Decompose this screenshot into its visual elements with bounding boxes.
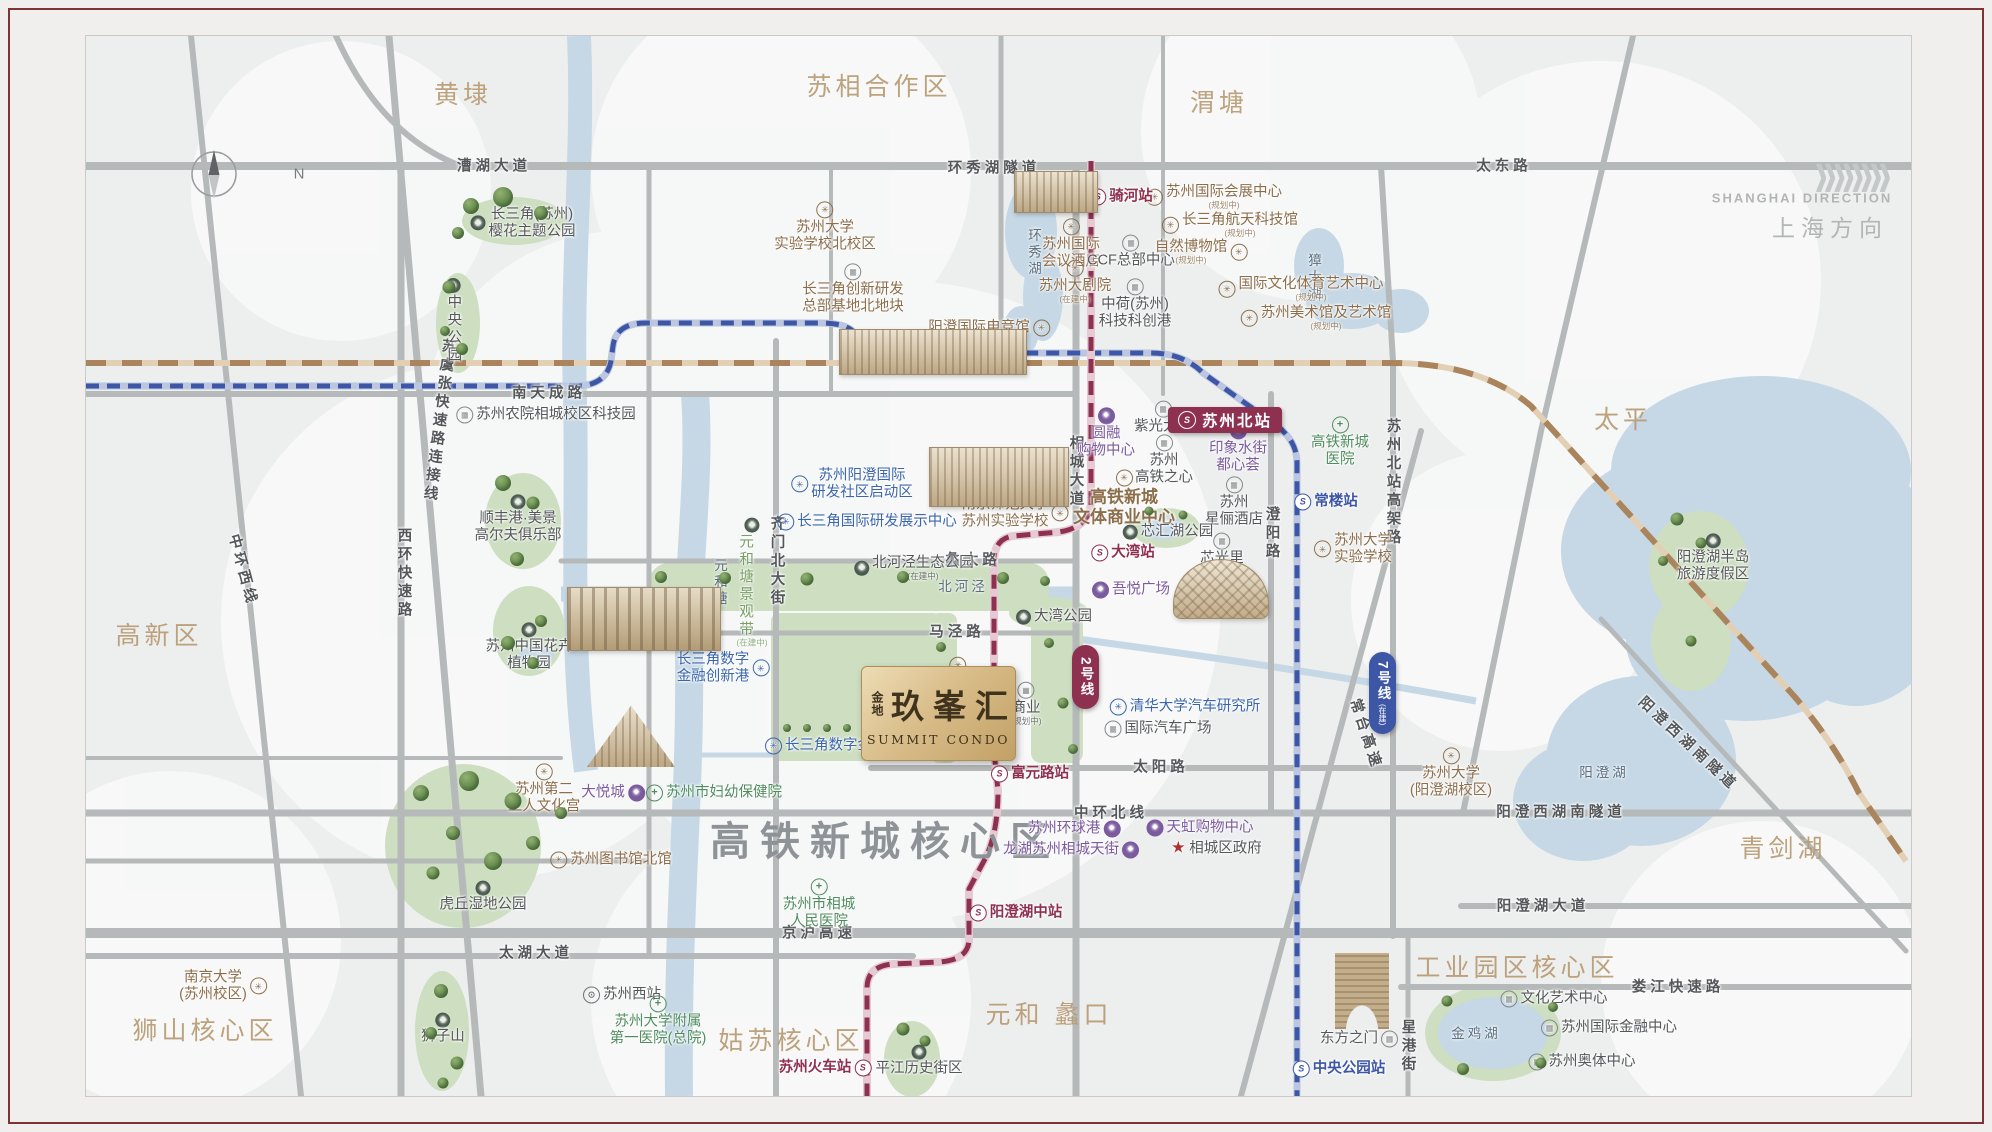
building-icon: ▦: [456, 407, 473, 424]
road-label: 阳澄湖大道: [1497, 895, 1590, 916]
poi-label: ✳长三角国际研发展示中心: [777, 514, 957, 531]
poi-label: +高铁新城医院: [1311, 416, 1369, 467]
poi-text: 苏州火车站: [779, 1060, 852, 1077]
tree-icon: [823, 724, 831, 732]
building-icon: ▦: [1226, 476, 1243, 493]
poi-text: 长三角国际研发展示中心: [797, 514, 957, 531]
metro-line7-station-icon: S: [1293, 1061, 1310, 1078]
tree-icon: [1058, 698, 1069, 709]
tree-icon: [1040, 576, 1050, 586]
building-icon: ▦: [1017, 682, 1034, 699]
map-canvas: 黄埭苏相合作区渭塘太平高新区狮山核心区姑苏核心区元和 蠡口青剑湖工业园区核心区高…: [85, 35, 1912, 1097]
hospital-icon: +: [649, 995, 666, 1012]
line7-status: (在建): [1377, 704, 1388, 725]
poi-station: S富元路站: [991, 766, 1069, 783]
park-icon: ♣: [1706, 533, 1721, 548]
poi-text: 大湾公园: [1034, 609, 1092, 626]
tree-icon: [527, 657, 539, 669]
park-icon: ♣: [1016, 609, 1031, 624]
poi-label: ♣大湾公园: [1016, 609, 1092, 626]
road-label: 阳澄西湖南隧道: [1496, 801, 1626, 822]
park-icon: ♣: [471, 216, 486, 231]
tree-icon: [1068, 744, 1078, 754]
road-label: 中环西线: [224, 532, 263, 609]
road-label: 阳澄西湖南隧道: [1634, 691, 1743, 795]
landmark-icon: ✳: [765, 738, 782, 755]
tree-icon: [1548, 1002, 1558, 1012]
region-label: 元和 蠡口: [986, 995, 1113, 1031]
poi-text: 相城区政府: [1189, 841, 1262, 858]
road-label: 漕湖大道: [457, 155, 531, 176]
road-label: 南天成路: [512, 382, 586, 403]
poi-text: 元和塘景观带(在建中): [736, 534, 767, 649]
tree-icon: [803, 724, 811, 732]
poi-label: ▦国际汽车广场: [1105, 721, 1212, 738]
metro-icon: S: [1178, 411, 1196, 429]
poi-text: 苏州星俪酒店: [1205, 494, 1263, 527]
tree-icon: [783, 724, 791, 732]
poi-text: 国际汽车广场: [1125, 721, 1212, 738]
fintech-port-towers: [567, 587, 721, 651]
poi-text: 苏州大学(阳澄湖校区): [1410, 765, 1492, 798]
tree-icon: [456, 343, 468, 355]
building-icon: ▦: [1127, 278, 1144, 295]
tree-icon: [897, 571, 909, 583]
landmark-icon: ✳: [1033, 320, 1050, 337]
poi-label: ◆吾悦广场: [1092, 582, 1170, 599]
poi-text: 苏州国际金融中心: [1561, 1020, 1677, 1037]
water-label: 阳澄湖: [1579, 761, 1629, 781]
poi-label: ◆龙湖苏州相城天街: [1003, 842, 1139, 859]
metro-line7-badge: 7号线 (在建): [1369, 652, 1396, 734]
poi-text: 长三角数字金融创新港: [677, 651, 750, 684]
building-icon: ▦: [1123, 235, 1140, 252]
poi-text: 自然博物馆(规划中): [1155, 239, 1228, 265]
poi-label: ✳苏州国际会展中心(规划中): [1146, 184, 1282, 210]
tree-icon: [1671, 513, 1684, 526]
landmark-icon: ✳: [250, 978, 267, 995]
poi-text: 吾悦广场: [1112, 582, 1170, 599]
landmark-icon: ✳: [1162, 217, 1179, 234]
region-label: 黄埭: [434, 75, 492, 111]
poi-text: 长三角航天科技馆(规划中): [1182, 212, 1298, 238]
tree-icon: [451, 1057, 464, 1070]
tree-icon: [1686, 636, 1697, 647]
building-icon: ▦: [1381, 1031, 1398, 1048]
tree-icon: [936, 642, 946, 652]
poi-text: 国际文化体育艺术中心(规划中): [1239, 276, 1384, 302]
tree-icon: [527, 497, 540, 510]
poi-station: S大湾站: [1091, 545, 1155, 562]
region-label: 姑苏核心区: [718, 1021, 863, 1057]
road-label: 太湖大道: [499, 942, 573, 963]
mall-icon: ◆: [1147, 820, 1164, 837]
park-icon: ♣: [511, 494, 526, 509]
landmark-icon: ✳: [1314, 541, 1331, 558]
poi-text: 高铁新城医院: [1311, 434, 1369, 467]
suzhou-north-station-building: [839, 329, 1027, 375]
road-label: 中环北线: [1074, 802, 1148, 823]
road-label: 娄江快速路: [1632, 976, 1725, 997]
landmark-icon: ✳: [1230, 244, 1247, 261]
poi-label: ◆大悦城: [581, 785, 645, 802]
landmark-icon: ✳: [777, 514, 794, 531]
suzhou-north-station-badge: S 苏州北站: [1168, 407, 1282, 433]
tree-icon: [1044, 638, 1054, 648]
region-label: 高新区: [115, 616, 202, 652]
region-label: 渭塘: [1190, 83, 1248, 119]
mall-icon: ◆: [628, 785, 645, 802]
poi-text: 苏州市相城人民医院: [783, 896, 856, 929]
poi-station: S骑河站: [1089, 189, 1153, 206]
tree-icon: [443, 281, 456, 294]
tree-icon: [920, 1036, 931, 1047]
poi-label: ▦苏州农院相城校区科技园: [456, 407, 636, 424]
park-icon: ♣: [476, 881, 491, 896]
poi-text: 苏州环球港: [1028, 821, 1101, 838]
railway-station-icon: ⊙: [583, 987, 600, 1004]
tree-icon: [452, 227, 464, 239]
building-icon: ▦: [1214, 533, 1231, 550]
poi-label: ♣平江历史街区: [876, 1045, 963, 1078]
poi-label: ▦苏州星俪酒店: [1205, 476, 1263, 527]
poi-text: 苏州美术馆及艺术馆(规划中): [1261, 305, 1392, 331]
suzhou-north-station-label: 苏州北站: [1202, 409, 1272, 431]
park-icon: ♣: [436, 1013, 451, 1028]
poi-text: 富元路站: [1011, 766, 1069, 783]
mall-icon: ◆: [1122, 842, 1139, 859]
hospital-icon: +: [646, 785, 663, 802]
poi-text: 印象水街都心荟: [1209, 440, 1267, 473]
metro-line2-station-icon: S: [970, 905, 987, 922]
region-label: 青剑湖: [1739, 829, 1826, 865]
tree-icon: [1457, 1063, 1469, 1075]
hospital-icon: +: [1332, 416, 1349, 433]
poi-text: 圆融购物中心: [1077, 425, 1135, 458]
tree-icon: [459, 771, 479, 791]
tree-icon: [434, 984, 448, 998]
poi-text: 苏州阳澄国际研发社区启动区: [811, 467, 913, 500]
tree-icon: [655, 571, 667, 583]
tree-icon: [1145, 507, 1154, 516]
poi-text: 文化艺术中心: [1521, 991, 1608, 1008]
poi-text: 北河泾生态公园(在建中): [872, 555, 974, 581]
poi-label: ♣长三角(苏州)樱花主题公园: [471, 206, 576, 239]
park-icon: ♣: [1123, 524, 1138, 539]
compass-north-label: N: [294, 166, 305, 183]
road-label: 西环快速路: [394, 528, 415, 621]
poi-station: S苏州火车站: [779, 1060, 872, 1077]
poi-text: 高铁新城文体商业中心: [1073, 487, 1175, 526]
poi-text: 苏州市妇幼保健院: [666, 785, 782, 802]
tree-icon: [1442, 996, 1453, 1007]
poi-label: ♣虎丘湿地公园: [440, 881, 527, 914]
tree-icon: [843, 724, 851, 732]
landmark-icon: ✳: [1219, 281, 1236, 298]
poi-label: ✳苏州图书馆北馆: [550, 852, 672, 869]
park-icon: ♣: [912, 1045, 927, 1060]
poi-label: ♣北河泾生态公园(在建中): [854, 555, 974, 581]
road-label: 苏州北站高架路: [1383, 418, 1404, 548]
poi-text: 阳澄湖半岛旅游度假区: [1677, 549, 1750, 582]
landmark-icon: ✳: [791, 476, 808, 493]
poi-text: 苏州农院相城校区科技园: [476, 407, 636, 424]
road-label: 星港街: [1398, 1019, 1419, 1075]
tree-icon: [1658, 556, 1668, 566]
poi-text: 苏州大学附属第一医院(总院): [610, 1013, 707, 1046]
poi-text: 平江历史街区: [876, 1061, 963, 1078]
tree-icon: [440, 326, 450, 336]
poi-station: S阳澄湖中站: [970, 905, 1063, 922]
poi-label: ✳南京大学(苏州校区): [179, 969, 267, 1002]
poi-label: ✳苏州阳澄国际研发社区启动区: [791, 467, 913, 500]
road-label: 马泾路: [929, 621, 985, 642]
shanghai-direction-zh: 上海方向: [1772, 209, 1888, 243]
metro-line2-station-icon: S: [854, 1060, 871, 1077]
tree-icon: [526, 836, 540, 850]
tree-icon: [463, 198, 479, 214]
poi-text: 虎丘湿地公园: [440, 897, 527, 914]
location-map-poster: 黄埭苏相合作区渭塘太平高新区狮山核心区姑苏核心区元和 蠡口青剑湖工业园区核心区高…: [0, 0, 1992, 1132]
region-label: 工业园区核心区: [1415, 948, 1618, 984]
poi-text: 天虹购物中心: [1167, 820, 1254, 837]
poi-label: ✳高铁新城文体商业中心: [1073, 469, 1175, 526]
landmark-icon: ✳: [536, 763, 553, 780]
line7-label: 7号线: [1373, 661, 1393, 702]
road-label: 太阳路: [1133, 756, 1189, 777]
tree-icon: [997, 572, 1009, 584]
poi-text: 东方之门: [1320, 1031, 1378, 1048]
poi-text: 阳澄湖中站: [990, 905, 1063, 922]
poi-label: ♣元和塘景观带(在建中): [736, 518, 767, 649]
building-icon: ▦: [1541, 1020, 1558, 1037]
metro-line2-station-icon: S: [991, 766, 1008, 783]
poi-label: ◆天虹购物中心: [1147, 820, 1254, 837]
landmark-icon: ✳: [1116, 469, 1133, 486]
poi-text: 苏州大学实验学校北校区: [774, 219, 876, 252]
conference-center-building: [1014, 171, 1098, 213]
poi-label: ✳国际文化体育艺术中心(规划中): [1219, 276, 1384, 302]
tree-icon: [555, 807, 567, 819]
poi-label: ✳自然博物馆(规划中): [1155, 239, 1248, 265]
tree-icon: [505, 793, 522, 810]
poi-text: 中荷(苏州)科技科创港: [1099, 296, 1172, 329]
building-icon: ▦: [845, 263, 862, 280]
poi-label: ✳清华大学汽车研究所: [1110, 699, 1261, 716]
water-label: 金鸡湖: [1451, 1022, 1501, 1042]
poi-text: 苏州大学实验学校: [1334, 532, 1392, 565]
tree-icon: [495, 475, 511, 491]
tree-icon: [438, 1078, 449, 1089]
poi-station: S常楼站: [1294, 494, 1358, 511]
tree-icon: [484, 852, 502, 870]
tree-icon: [534, 206, 548, 220]
poi-text: 长三角(苏州)樱花主题公园: [489, 206, 576, 239]
hospital-icon: +: [811, 878, 828, 895]
landmark-icon: ✳: [1063, 218, 1080, 235]
poi-label: ✳长三角数字金融创新港: [677, 651, 770, 684]
project-marker: 金地 玖峯汇 SUMMIT CONDO: [861, 666, 1016, 761]
tree-icon: [897, 1023, 910, 1036]
building-icon: ▦: [1105, 721, 1122, 738]
poi-label: ✳苏州美术馆及艺术馆(规划中): [1241, 305, 1392, 331]
poi-text: 中央公园站: [1313, 1061, 1386, 1078]
building-icon: ▦: [1156, 434, 1173, 451]
landmark-icon: ✳: [1442, 747, 1459, 764]
poi-label: +苏州市相城人民医院: [783, 878, 856, 929]
poi-label: ▦中荷(苏州)科技科创港: [1099, 278, 1172, 329]
project-latin-name: SUMMIT CONDO: [867, 732, 1010, 747]
poi-label: ✳苏州大学实验学校: [1314, 532, 1392, 565]
wuyue-plaza-building: [1173, 559, 1269, 619]
landmark-icon: ✳: [817, 201, 834, 218]
tree-icon: [801, 573, 814, 586]
mall-icon: ◆: [1103, 821, 1120, 838]
landmark-icon: ✳: [1241, 310, 1258, 327]
poi-text: 苏州国际会展中心(规划中): [1166, 184, 1282, 210]
nnu-school-building: [929, 447, 1069, 507]
poi-label: ▦苏州国际金融中心: [1541, 1020, 1677, 1037]
poi-label: ◆圆融购物中心: [1077, 407, 1135, 458]
joy-city-building: [587, 703, 675, 767]
mall-icon: ◆: [1092, 582, 1109, 599]
road-label: 太东路: [1476, 155, 1532, 176]
poi-label: +苏州市妇幼保健院: [646, 785, 782, 802]
road-label: 澄阳路: [1262, 506, 1283, 562]
poi-label: +苏州大学附属第一医院(总院): [610, 995, 707, 1046]
park-icon: ♣: [744, 518, 759, 533]
poi-label: ✳苏州大学(阳澄湖校区): [1410, 747, 1492, 798]
mall-icon: ◆: [1098, 407, 1115, 424]
metro-line2-badge: 2号线: [1072, 645, 1099, 709]
poi-text: 大湾站: [1111, 545, 1155, 562]
region-label: 太平: [1594, 400, 1652, 436]
tree-icon: [501, 636, 515, 650]
poi-label: ✳长三角航天科技馆(规划中): [1162, 212, 1298, 238]
landmark-icon: ✳: [752, 660, 769, 677]
tree-icon: [413, 785, 429, 801]
map-labels-layer: 黄埭苏相合作区渭塘太平高新区狮山核心区姑苏核心区元和 蠡口青剑湖工业园区核心区高…: [86, 36, 1911, 1096]
tree-icon: [425, 1027, 437, 1039]
tree-icon: [1179, 511, 1188, 520]
project-brand: 金地: [869, 691, 886, 717]
project-logo: 金地 玖峯汇: [869, 680, 1008, 728]
project-name: 玖峯汇: [891, 680, 1017, 728]
poi-text: 大悦城: [581, 785, 625, 802]
poi-text: 苏州图书馆北馆: [570, 852, 672, 869]
line2-label: 2号线: [1076, 657, 1096, 698]
poi-text: 骑河站: [1109, 189, 1153, 206]
tree-icon: [446, 826, 460, 840]
park-icon: ♣: [522, 622, 537, 637]
poi-text: 南京大学(苏州校区): [179, 969, 247, 1002]
region-label: 苏相合作区: [806, 67, 951, 103]
landmark-icon: ✳: [1067, 260, 1084, 277]
tree-icon: [535, 615, 547, 627]
tree-icon: [510, 552, 524, 566]
poi-label: ▦东方之门: [1320, 1031, 1398, 1048]
landmark-icon: ✳: [1110, 699, 1127, 716]
tree-icon: [1696, 538, 1707, 549]
shanghai-direction-en: SHANGHAI DIRECTION: [1712, 191, 1892, 206]
poi-label: ▦长三角创新研发总部基地北地块: [802, 263, 904, 314]
metro-line7-station-icon: S: [1294, 494, 1311, 511]
poi-label: ✳苏州大学实验学校北校区: [774, 201, 876, 252]
poi-text: 顺丰港·美景高尔夫俱乐部: [475, 510, 562, 543]
tree-icon: [427, 867, 440, 880]
poi-text: 常楼站: [1314, 494, 1358, 511]
poi-text: 长三角创新研发总部基地北地块: [802, 281, 904, 314]
tree-icon: [493, 187, 513, 207]
poi-label: ♣阳澄湖半岛旅游度假区: [1677, 533, 1750, 582]
park-icon: ♣: [854, 561, 869, 576]
poi-text: 苏州奥体中心: [1549, 1054, 1636, 1071]
gate-of-the-orient-building: [1335, 953, 1389, 1029]
building-icon: ▦: [1501, 991, 1518, 1008]
metro-line2-station-icon: S: [1091, 545, 1108, 562]
region-label: 狮山核心区: [132, 1011, 277, 1047]
tree-icon: [1536, 1058, 1547, 1069]
government-star-icon: ★: [1170, 841, 1186, 856]
tree-icon: [719, 572, 731, 584]
poi-text: 清华大学汽车研究所: [1130, 699, 1261, 716]
poi-station: S中央公园站: [1293, 1061, 1386, 1078]
landmark-icon: ✳: [550, 852, 567, 869]
landmark-icon: ✳: [1052, 505, 1069, 522]
poi-text: 龙湖苏州相城天街: [1003, 842, 1119, 859]
poi-label: ♣顺丰港·美景高尔夫俱乐部: [475, 494, 562, 543]
poi-label: ★相城区政府: [1170, 841, 1262, 858]
poi-label: ◆苏州环球港: [1028, 821, 1121, 838]
